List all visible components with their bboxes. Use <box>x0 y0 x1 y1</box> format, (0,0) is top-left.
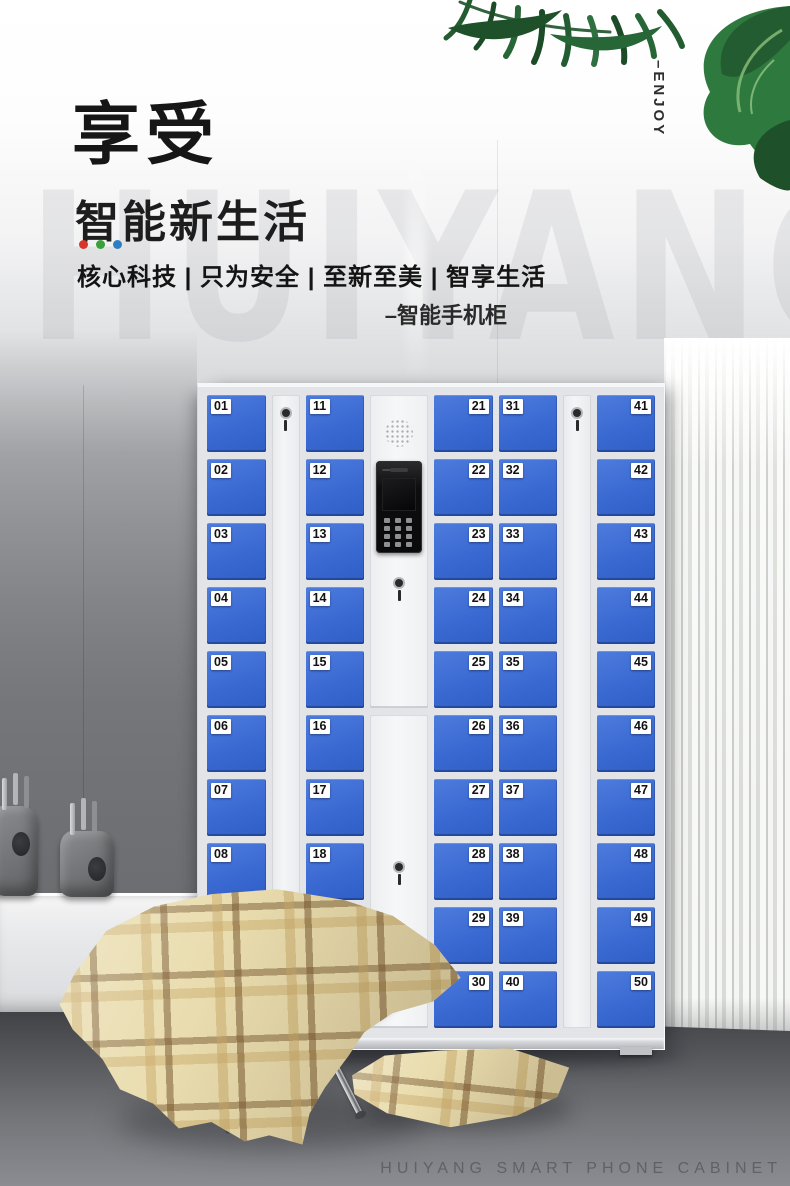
door-number-label: 39 <box>503 911 523 926</box>
locker-door: 11 <box>306 395 365 452</box>
locker-door: 44 <box>597 587 655 644</box>
locker-door: 25 <box>434 651 493 708</box>
locker-door: 49 <box>597 907 655 964</box>
locker-door: 01 <box>207 395 266 452</box>
locker-column: 21222324252627282930 <box>434 395 493 1028</box>
door-number-label: 17 <box>310 783 330 798</box>
door-number-label: 38 <box>503 847 523 862</box>
door-number-label: 13 <box>310 527 330 542</box>
locker-door: 22 <box>434 459 493 516</box>
lock-panel <box>563 395 591 1028</box>
door-number-label: 01 <box>211 399 231 414</box>
locker-door: 14 <box>306 587 365 644</box>
product-label: –智能手机柜 <box>77 298 507 330</box>
locker-door: 36 <box>499 715 558 772</box>
locker-door: 16 <box>306 715 365 772</box>
locker-door: 39 <box>499 907 558 964</box>
locker-door: 05 <box>207 651 266 708</box>
door-number-label: 36 <box>503 719 523 734</box>
scene: HUIYANG 01020304050607080910111213141516… <box>0 0 790 1186</box>
locker-door: 21 <box>434 395 493 452</box>
door-number-label: 11 <box>310 399 330 414</box>
locker-door: 31 <box>499 395 558 452</box>
locker-door: 35 <box>499 651 558 708</box>
wall-corner-line <box>83 385 84 895</box>
hero-title: 享受 <box>72 100 220 171</box>
door-number-label: 42 <box>631 463 651 478</box>
keyhole-icon <box>272 409 300 431</box>
keyhole-icon <box>563 409 591 431</box>
door-number-label: 15 <box>310 655 330 670</box>
footer-caption: HUIYANG SMART PHONE CABINET <box>380 1160 782 1178</box>
decor-vase <box>60 831 114 897</box>
locker-door: 28 <box>434 843 493 900</box>
locker-door: 45 <box>597 651 655 708</box>
door-number-label: 31 <box>503 399 523 414</box>
door-number-label: 06 <box>211 719 231 734</box>
locker-door: 04 <box>207 587 266 644</box>
door-number-label: 40 <box>503 975 523 990</box>
key-lock-icon <box>370 579 428 601</box>
door-number-label: 05 <box>211 655 231 670</box>
door-number-label: 43 <box>631 527 651 542</box>
door-number-label: 03 <box>211 527 231 542</box>
door-number-label: 33 <box>503 527 523 542</box>
door-number-label: 34 <box>503 591 523 606</box>
locker-door: 13 <box>306 523 365 580</box>
vase-hole <box>88 857 106 881</box>
accent-dot-green <box>96 240 105 249</box>
door-number-label: 30 <box>469 975 489 990</box>
locker-door: 37 <box>499 779 558 836</box>
door-number-label: 02 <box>211 463 231 478</box>
door-number-label: 12 <box>310 463 330 478</box>
door-number-label: 18 <box>310 847 330 862</box>
locker-door: 41 <box>597 395 655 452</box>
locker-column: 41424344454647484950 <box>597 395 655 1028</box>
door-number-label: 07 <box>211 783 231 798</box>
door-number-label: 47 <box>631 783 651 798</box>
locker-door: 15 <box>306 651 365 708</box>
accent-dot-red <box>79 240 88 249</box>
door-number-label: 22 <box>469 463 489 478</box>
door-number-label: 04 <box>211 591 231 606</box>
locker-door: 03 <box>207 523 266 580</box>
vase-rods <box>2 778 7 810</box>
intercom-screen <box>382 478 416 511</box>
locker-door: 07 <box>207 779 266 836</box>
decor-vase <box>0 806 38 896</box>
locker-door: 33 <box>499 523 558 580</box>
door-number-label: 14 <box>310 591 330 606</box>
locker-door: 06 <box>207 715 266 772</box>
locker-column: 31323334353637383940 <box>499 395 558 1028</box>
locker-door: 23 <box>434 523 493 580</box>
door-number-label: 29 <box>469 911 489 926</box>
door-number-label: 44 <box>631 591 651 606</box>
lock-column <box>563 395 591 1028</box>
door-number-label: 46 <box>631 719 651 734</box>
locker-door: 43 <box>597 523 655 580</box>
locker-door: 40 <box>499 971 558 1028</box>
camera-icon <box>390 468 408 472</box>
locker-door: 12 <box>306 459 365 516</box>
door-number-label: 28 <box>469 847 489 862</box>
locker-door: 27 <box>434 779 493 836</box>
locker-door: 34 <box>499 587 558 644</box>
locker-door: 18 <box>306 843 365 900</box>
locker-door: 50 <box>597 971 655 1028</box>
door-number-label: 27 <box>469 783 489 798</box>
door-number-label: 45 <box>631 655 651 670</box>
keypad-icon <box>384 518 414 547</box>
locker-door: 26 <box>434 715 493 772</box>
door-number-label: 35 <box>503 655 523 670</box>
door-number-label: 41 <box>631 399 651 414</box>
hero-tagline: 核心科技 | 只为安全 | 至新至美 | 智享生活 <box>77 257 546 292</box>
palm-leaves-icon <box>430 0 790 192</box>
accent-dot-blue <box>113 240 122 249</box>
door-number-label: 23 <box>469 527 489 542</box>
door-number-label: 26 <box>469 719 489 734</box>
vase-hole <box>12 832 30 856</box>
door-number-label: 25 <box>469 655 489 670</box>
locker-door: 42 <box>597 459 655 516</box>
door-number-label: 49 <box>631 911 651 926</box>
cabinet-foot <box>620 1047 652 1055</box>
door-number-label: 50 <box>631 975 651 990</box>
door-number-label: 16 <box>310 719 330 734</box>
speaker-grille-icon <box>385 419 413 447</box>
locker-door: 48 <box>597 843 655 900</box>
locker-door: 17 <box>306 779 365 836</box>
vase-rods <box>70 803 75 835</box>
door-number-label: 08 <box>211 847 231 862</box>
door-number-label: 21 <box>469 399 489 414</box>
locker-door: 24 <box>434 587 493 644</box>
locker-door: 38 <box>499 843 558 900</box>
intercom-unit <box>376 461 422 553</box>
locker-door: 47 <box>597 779 655 836</box>
door-number-label: 37 <box>503 783 523 798</box>
key-lock-icon <box>370 863 428 885</box>
locker-door: 02 <box>207 459 266 516</box>
door-number-label: 32 <box>503 463 523 478</box>
sheer-curtain <box>664 338 790 1040</box>
door-number-label: 24 <box>469 591 489 606</box>
locker-door: 32 <box>499 459 558 516</box>
door-number-label: 48 <box>631 847 651 862</box>
accent-dots <box>79 240 122 249</box>
locker-door: 46 <box>597 715 655 772</box>
control-panel <box>370 395 428 708</box>
